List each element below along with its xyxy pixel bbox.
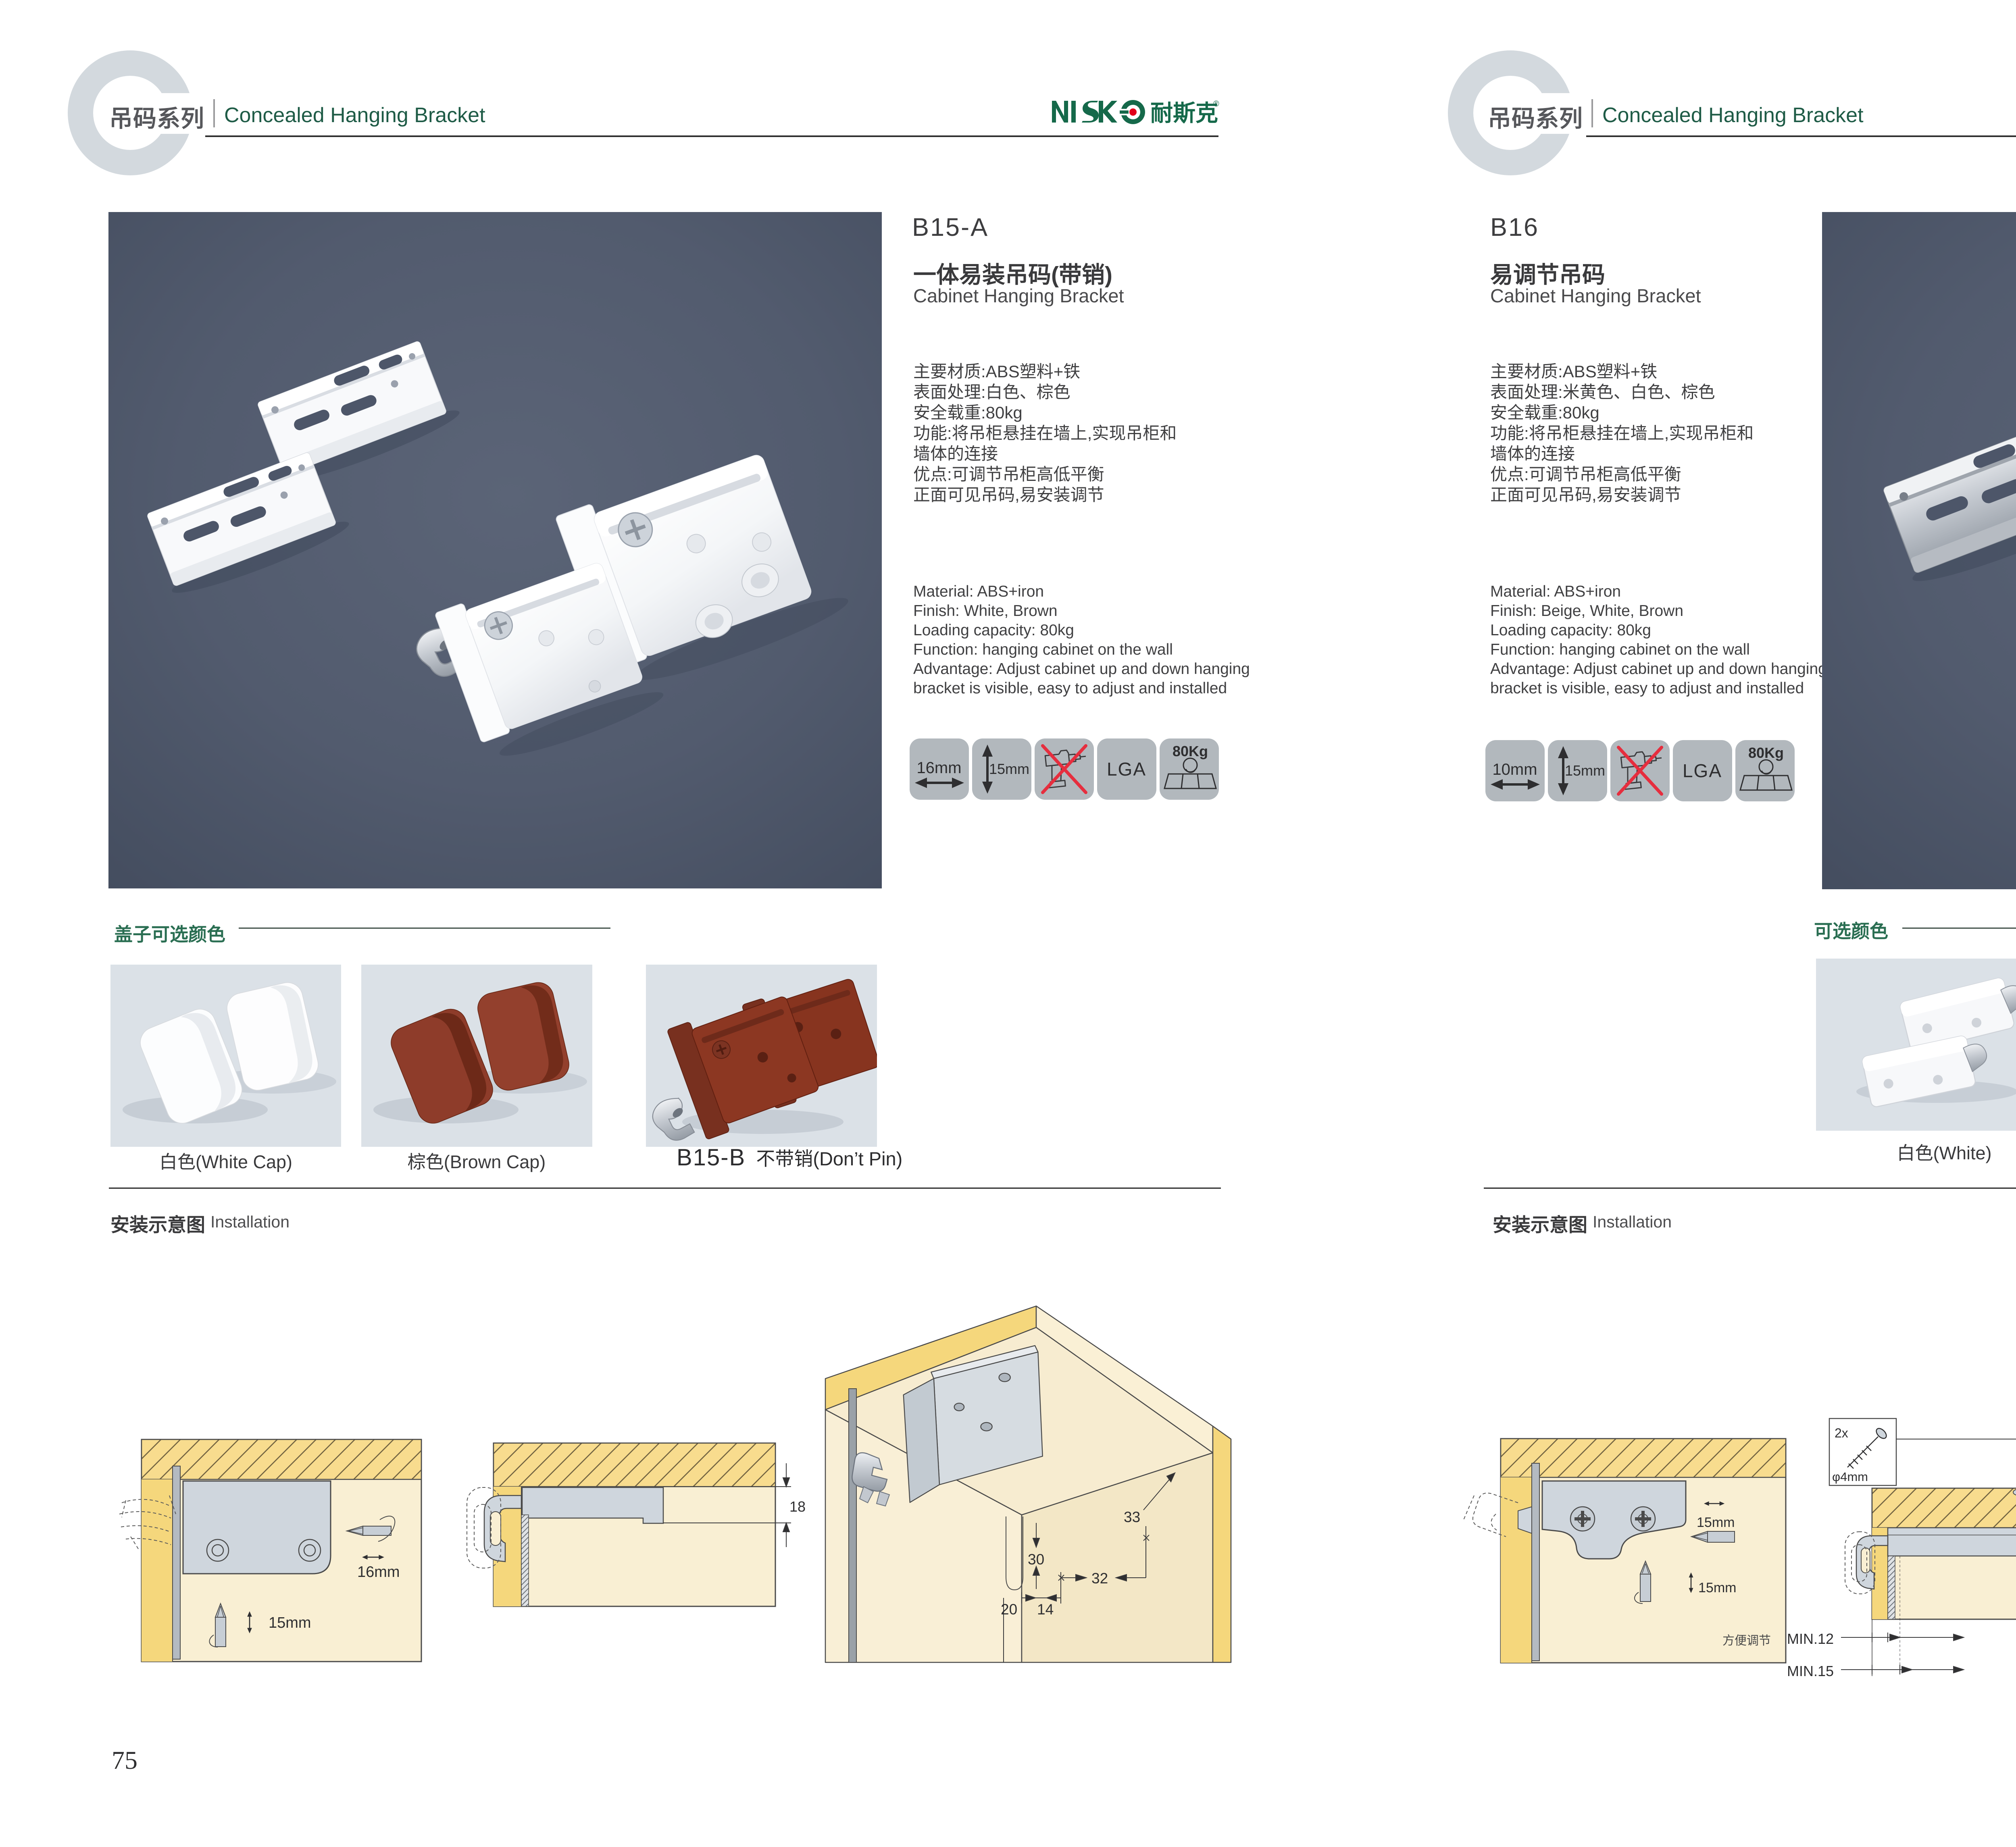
svg-text:15mm: 15mm [1698, 1580, 1736, 1595]
svg-text:32: 32 [1091, 1570, 1108, 1587]
svg-text:16mm: 16mm [357, 1564, 400, 1581]
svg-text:耐斯克: 耐斯克 [1150, 100, 1218, 126]
svg-text:20: 20 [1001, 1601, 1017, 1618]
svg-text:MIN.15: MIN.15 [1787, 1663, 1834, 1679]
svg-text:18: 18 [789, 1498, 806, 1515]
svg-text:®: ® [1213, 100, 1219, 108]
svg-text:16mm: 16mm [916, 759, 961, 777]
svg-text:80Kg: 80Kg [1748, 745, 1784, 761]
svg-text:10mm: 10mm [1492, 761, 1537, 778]
svg-text:80Kg: 80Kg [1173, 743, 1208, 759]
svg-text:LGA: LGA [1107, 759, 1146, 780]
svg-text:15mm: 15mm [1697, 1515, 1735, 1530]
svg-text:15mm: 15mm [269, 1614, 311, 1631]
svg-text:LGA: LGA [1683, 760, 1722, 781]
svg-text:方便调节: 方便调节 [1722, 1634, 1771, 1647]
svg-text:30: 30 [1028, 1551, 1044, 1568]
svg-text:2x: 2x [1835, 1426, 1848, 1440]
svg-text:15mm: 15mm [989, 761, 1029, 777]
svg-text:φ4mm: φ4mm [1832, 1470, 1868, 1484]
svg-text:14: 14 [1037, 1601, 1054, 1618]
svg-text:MIN.12: MIN.12 [1787, 1631, 1834, 1647]
svg-text:15mm: 15mm [1565, 762, 1605, 779]
svg-text:33: 33 [1124, 1509, 1140, 1525]
